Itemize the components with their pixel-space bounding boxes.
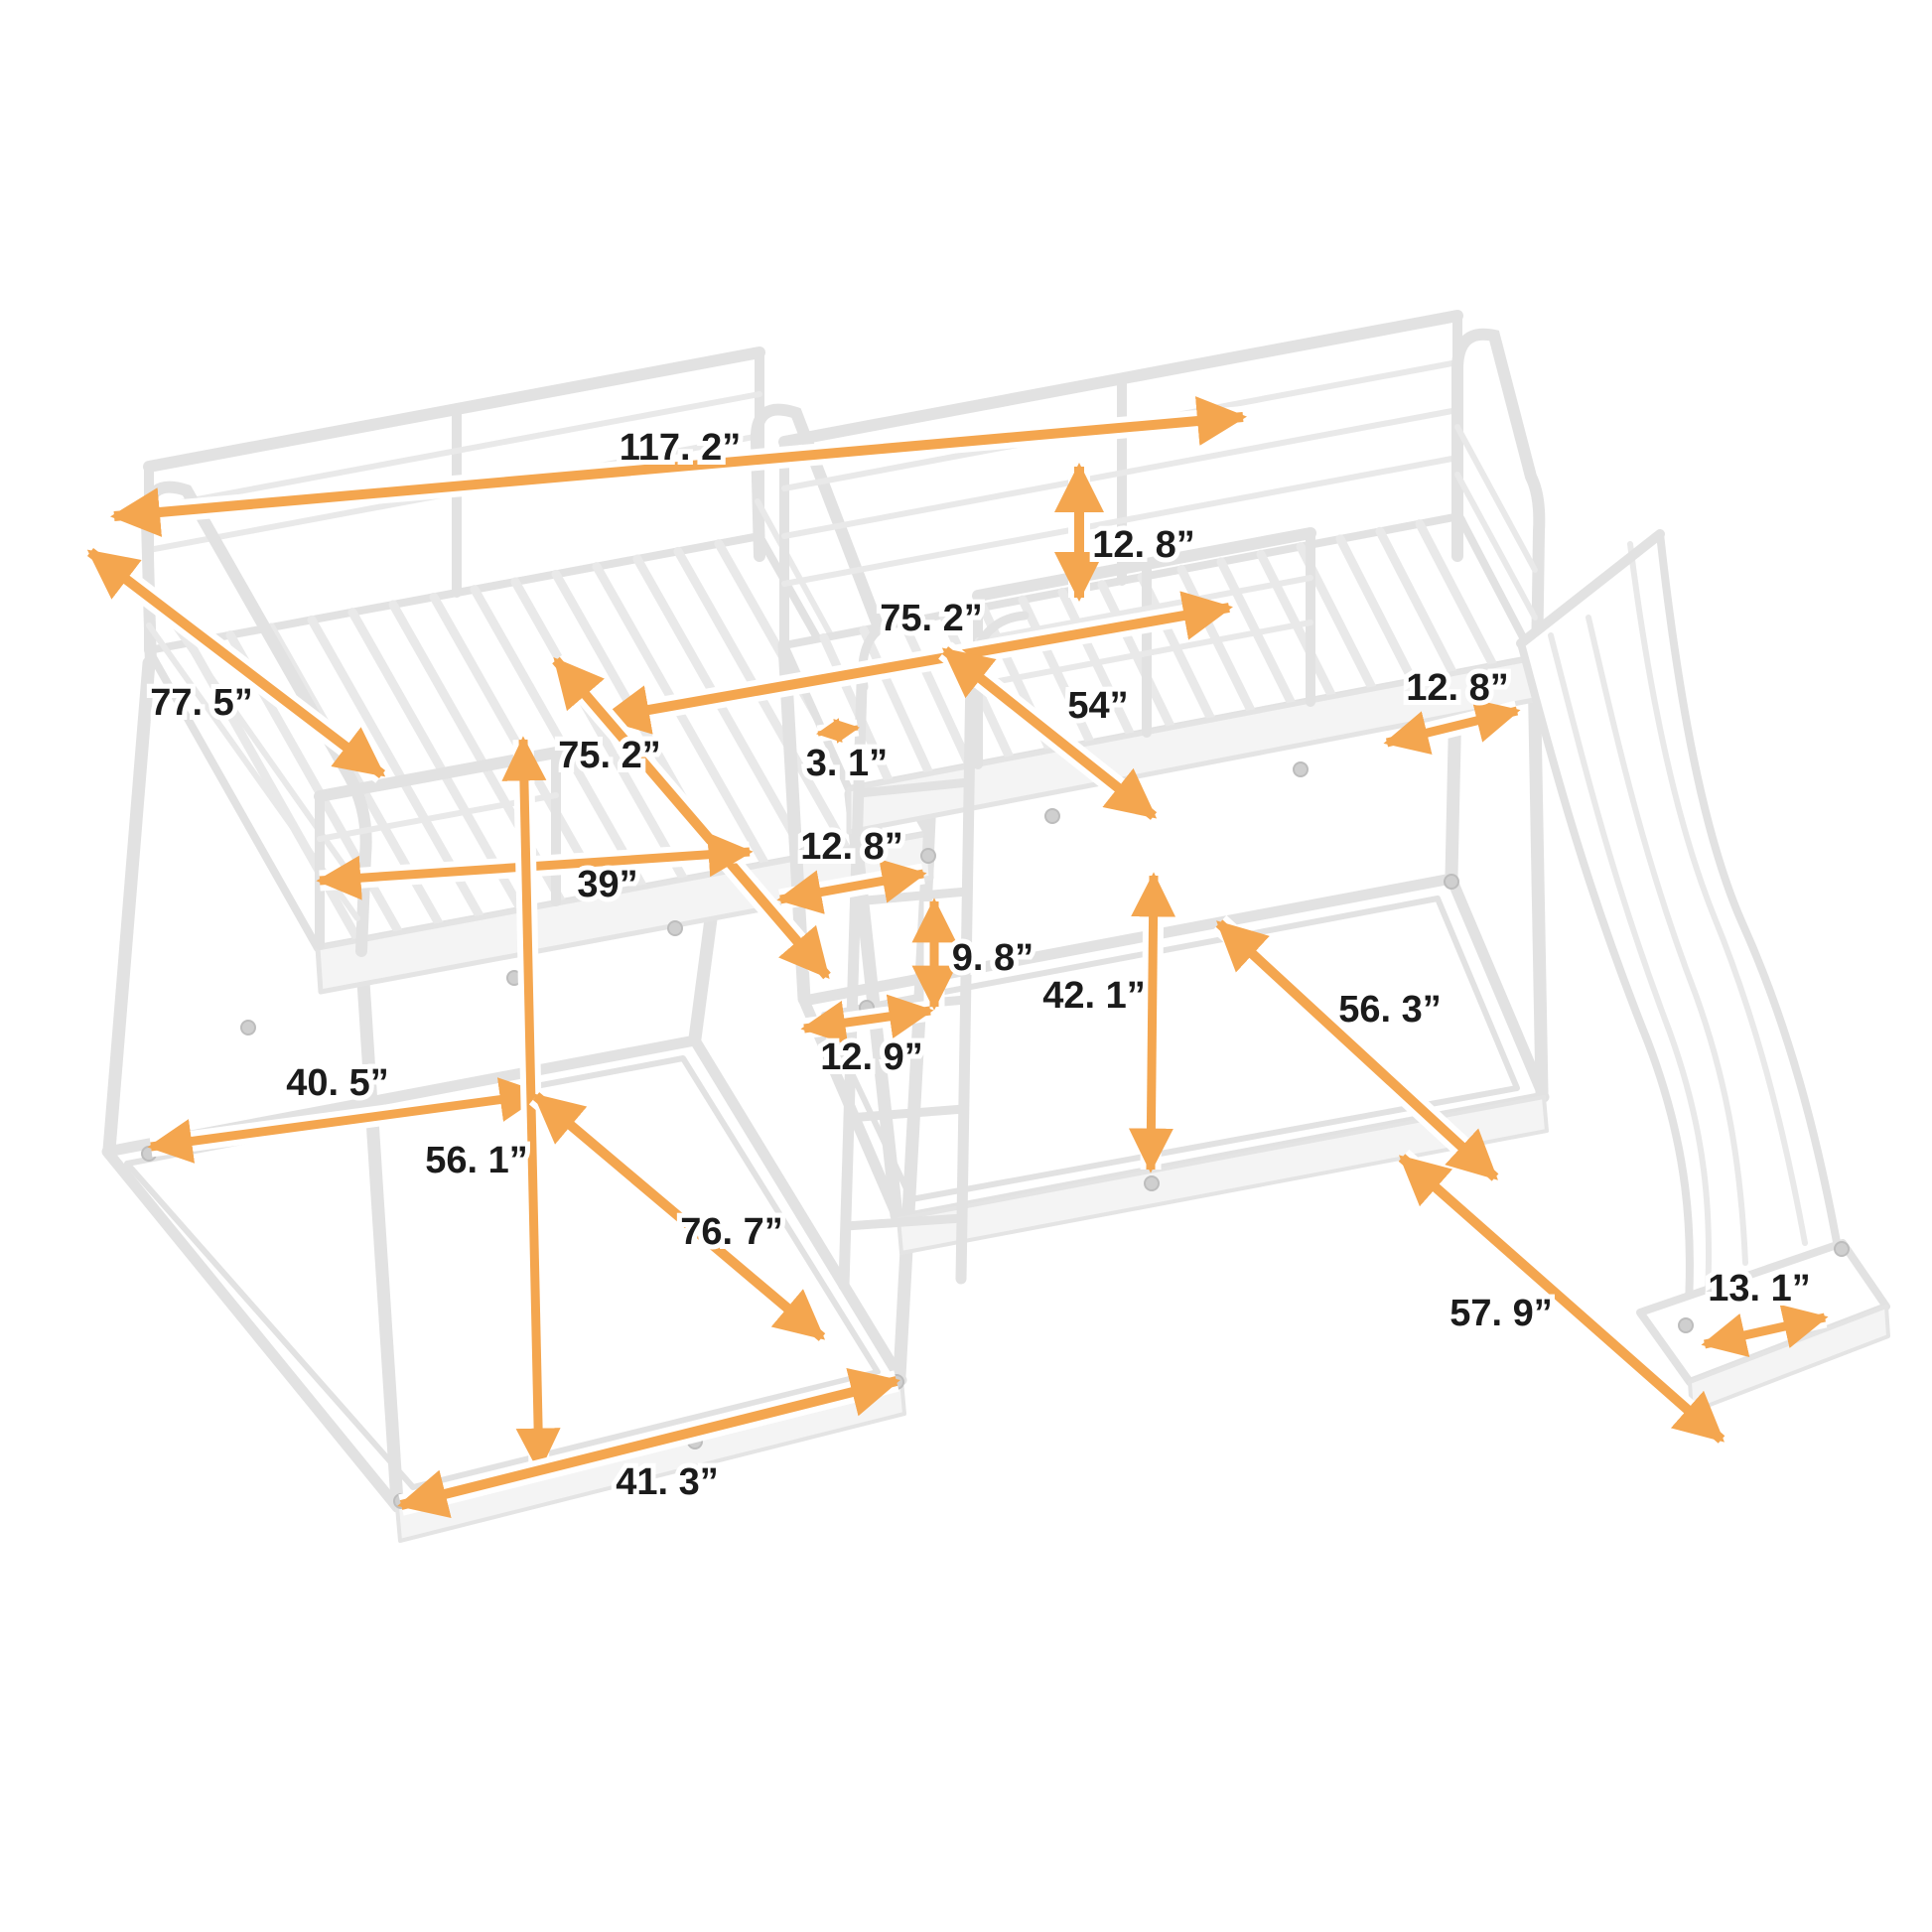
dim-full-bed-length-label: 75. 2” [880,598,983,639]
dim-full-bed-width-label: 54” [1067,685,1128,727]
bolt [668,921,682,935]
floor-frame-face [898,1097,1547,1253]
dimension-arrow [1151,876,1154,1170]
dim-ladder-gap-label: 3. 1” [806,743,888,784]
dim-slide-length-label: 57. 9” [1449,1293,1553,1334]
slide-body [1521,534,1839,1320]
bed-leg [109,663,149,1150]
dim-ladder-rung-spacing-label: 9. 8” [952,937,1034,979]
dim-lower-frame-diagonal: 76. 7” [536,1096,822,1337]
dim-slide-top-width-label: 12. 8” [1406,667,1509,709]
dim-under-bed-clearance: 42. 1” [1042,876,1154,1170]
bolt [1145,1176,1159,1190]
dim-ladder-width-label: 12. 9” [820,1036,923,1078]
dim-slide-top-width: 12. 8” [1387,667,1517,743]
bolt [1294,762,1308,776]
dim-lower-frame-length-label: 56. 3” [1338,989,1442,1031]
bolt [1679,1318,1693,1332]
dim-ladder-width: 12. 9” [804,1011,930,1078]
dim-overall-length-label: 117. 2” [620,427,742,469]
dim-lower-frame-front-width-label: 41. 3” [616,1461,719,1503]
bolt [1445,875,1458,889]
bolt [241,1021,255,1035]
diagram-canvas: 117. 2”12. 8”75. 2”54”12. 8”77. 5”3. 1”7… [0,0,1932,1932]
dim-left-bed-height-label: 56. 1” [425,1140,528,1181]
bed-leg [361,951,397,1502]
dim-ladder-offset: 12. 8” [780,826,923,899]
dim-twin-bed-length-label: 75. 2” [558,735,661,776]
dim-lower-frame-front-width: 41. 3” [401,1381,897,1505]
dim-upper-rail-height-label: 12. 8” [1092,524,1195,566]
dim-lower-frame-width-back-label: 40. 5” [286,1062,389,1104]
dim-left-bed-length-label: 77. 5” [150,682,253,724]
bolt [921,849,935,863]
dim-ladder-offset-label: 12. 8” [800,826,903,868]
dim-under-bed-clearance-label: 42. 1” [1042,975,1146,1017]
dim-lower-frame-diagonal-label: 76. 7” [680,1211,783,1253]
dim-twin-bed-width-label: 39” [577,864,637,905]
slide [1521,534,1888,1412]
bunk-bed-dimension-diagram: 117. 2”12. 8”75. 2”54”12. 8”77. 5”3. 1”7… [0,0,1932,1932]
bolt [1835,1242,1849,1256]
dim-slide-width-label: 13. 1” [1708,1268,1811,1310]
bolt [1045,809,1059,823]
